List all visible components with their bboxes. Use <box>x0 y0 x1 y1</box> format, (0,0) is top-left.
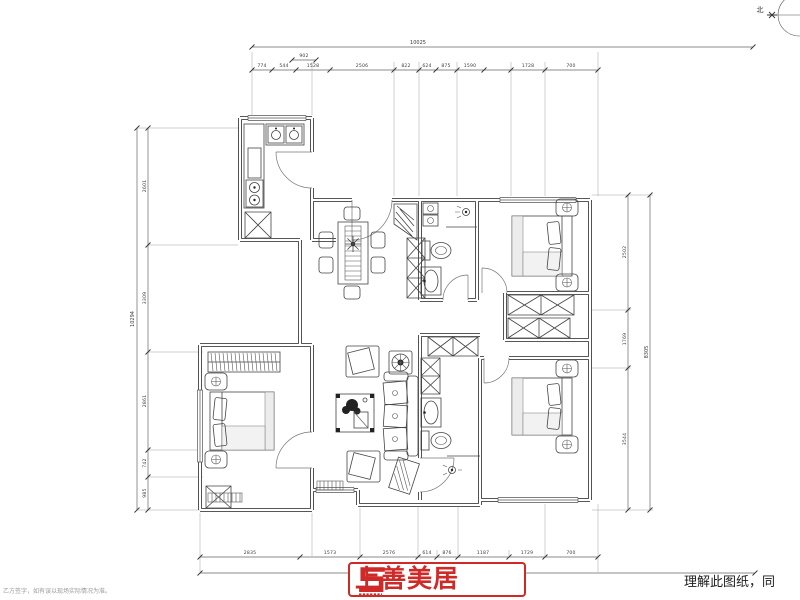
armchair <box>346 346 379 377</box>
dim-label: 8305 <box>644 346 650 359</box>
wardrobe <box>428 337 478 356</box>
master-bath-door <box>420 458 454 492</box>
master-door <box>484 358 509 383</box>
dimension-left: 10294 2601 3309 2861 742 985 <box>130 126 238 513</box>
sofa <box>383 372 418 460</box>
radiator-icon <box>208 493 242 502</box>
washbasin-icon <box>421 398 441 427</box>
window-kitchen <box>248 115 306 121</box>
dim-label: 10025 <box>410 40 426 46</box>
bathroom-door <box>443 275 468 300</box>
dim-label: 822 <box>401 63 410 69</box>
sink-icon <box>266 124 304 145</box>
chair <box>371 257 385 273</box>
cutting-board <box>248 148 261 178</box>
entry-cabinet <box>394 204 417 240</box>
coffee-table <box>336 394 374 432</box>
wardrobe <box>421 358 440 394</box>
dim-label: 1769 <box>622 333 628 346</box>
chair <box>344 286 360 299</box>
dim-label: 985 <box>142 488 148 497</box>
nightstand <box>556 436 578 453</box>
dim-label: 1528 <box>307 63 320 69</box>
master-closet <box>421 337 478 394</box>
dim-label: 902 <box>299 53 308 59</box>
bedroom-top-right <box>508 199 578 338</box>
hanger-wardrobe <box>208 352 280 372</box>
armchair <box>347 451 380 482</box>
bedroom-left-door <box>276 432 312 468</box>
brand-logo: 上善美居 <box>348 562 526 597</box>
kitchen-door <box>276 152 312 188</box>
dimension-right: 8305 2502 1769 3544 <box>592 193 653 513</box>
wardrobe <box>508 318 570 338</box>
window-bedroom-left <box>197 390 203 462</box>
living-room <box>317 346 419 494</box>
dim-label: 624 <box>422 63 431 69</box>
dim-label: 544 <box>279 63 288 69</box>
dim-label: 10294 <box>130 311 136 327</box>
pillow <box>213 397 227 420</box>
side-table <box>389 351 412 374</box>
nightstand <box>205 451 227 468</box>
dim-label: 2835 <box>244 550 257 556</box>
bedroom-top-door <box>482 268 507 293</box>
dim-label: 2506 <box>356 63 369 69</box>
dim-label: 3544 <box>622 433 628 446</box>
floorplan-drawing: 10025 774 544 902 1528 2506 822 624 875 … <box>0 0 800 600</box>
dim-label: 614 <box>422 550 431 556</box>
wardrobe <box>508 295 574 315</box>
bed <box>210 392 274 450</box>
window-bedroom-top <box>500 197 576 203</box>
shower-icon <box>455 206 470 218</box>
dim-label: 2601 <box>142 180 148 193</box>
floorplan-page: 10025 774 544 902 1528 2506 822 624 875 … <box>0 0 800 600</box>
dim-label: 876 <box>442 550 451 556</box>
nightstand <box>556 274 578 291</box>
logo-mark-icon <box>350 564 392 597</box>
dim-label: 1573 <box>324 550 337 556</box>
nightstand <box>556 360 578 377</box>
dim-label: 2502 <box>622 246 628 259</box>
caption-bottom-left: 乙方签字，如有误以现场实际情况为准。 <box>3 586 111 595</box>
shower-icon <box>443 465 462 475</box>
dim-label: 2576 <box>383 550 396 556</box>
bed <box>512 216 572 276</box>
toilet-icon <box>421 431 451 450</box>
nightstand <box>205 373 227 390</box>
dim-label: 774 <box>257 63 266 69</box>
washbasin-icon <box>421 267 441 295</box>
fridge-icon <box>245 212 271 238</box>
window-master-bottom <box>498 497 578 503</box>
bed <box>512 378 572 435</box>
dim-label: 1728 <box>522 63 535 69</box>
dim-label: 875 <box>441 63 450 69</box>
pillow <box>547 383 561 405</box>
dim-label: 1590 <box>464 63 477 69</box>
kitchen <box>244 124 304 238</box>
dim-label: 742 <box>142 458 148 467</box>
dim-label: 1729 <box>521 550 534 556</box>
caption-bottom-right: 理解此图纸，同 <box>684 571 775 590</box>
guest-bathroom <box>421 203 477 295</box>
bedroom-bottom-left <box>205 352 280 508</box>
master-bedroom <box>512 360 578 453</box>
dim-label: 700 <box>566 63 575 69</box>
north-compass: 北 <box>757 0 800 36</box>
stove-icon <box>246 180 263 207</box>
dimension-top: 10025 774 544 902 1528 2506 822 624 875 … <box>250 40 756 196</box>
dim-label: 2861 <box>142 395 148 408</box>
dim-label: 700 <box>566 550 575 556</box>
pillow <box>547 221 561 244</box>
toilet-icon <box>422 241 451 260</box>
plant-icon <box>345 236 361 252</box>
chair <box>319 257 333 273</box>
north-label: 北 <box>757 6 764 14</box>
cabinet <box>206 486 231 508</box>
dining-area <box>319 204 425 299</box>
rug <box>389 457 420 494</box>
dim-label: 1187 <box>477 550 490 556</box>
master-bathroom <box>421 398 480 475</box>
dim-label: 3309 <box>142 292 148 305</box>
